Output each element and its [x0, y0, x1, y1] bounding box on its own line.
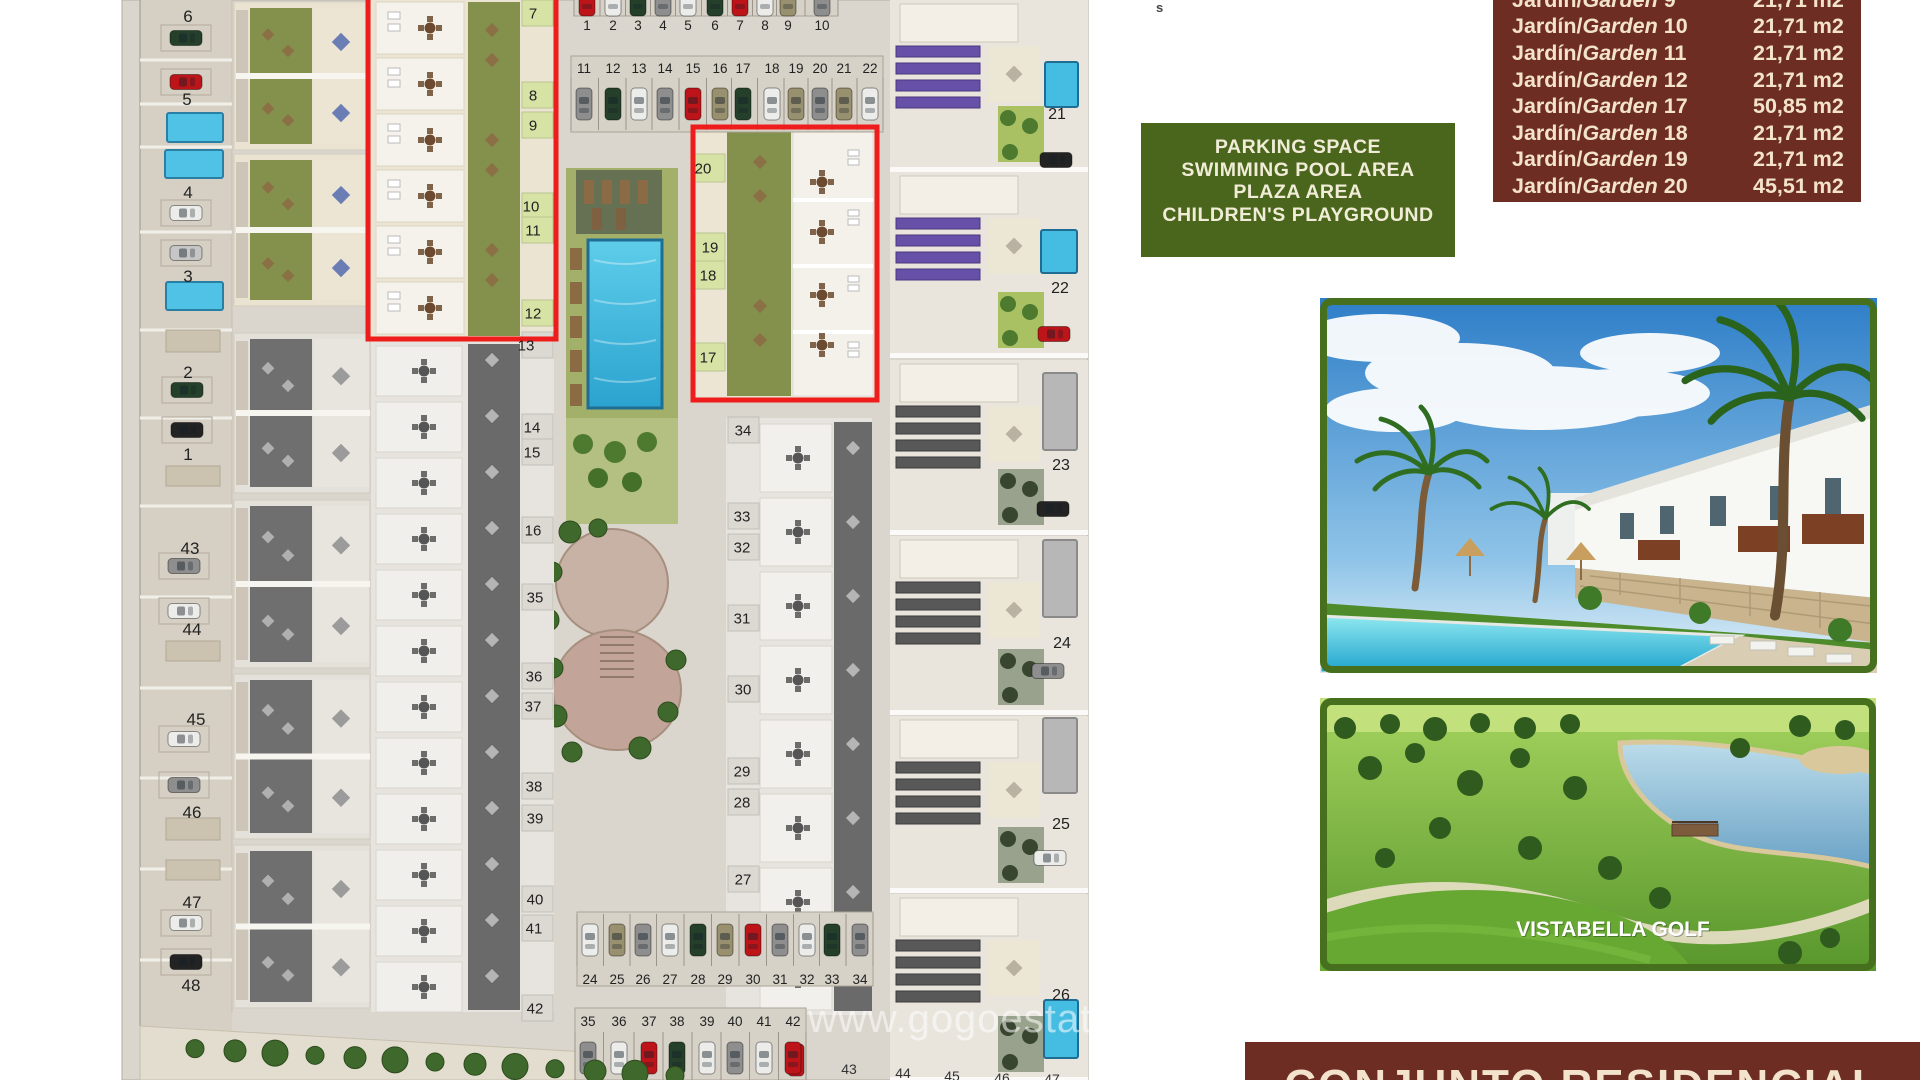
plan-number: 15	[524, 444, 541, 461]
plan-number: 21	[836, 61, 851, 76]
plan-number: 37	[641, 1014, 656, 1029]
plan-number: 3	[634, 18, 642, 33]
plan-number: 41	[756, 1014, 771, 1029]
plan-number: 30	[745, 972, 760, 987]
plan-number: 16	[712, 61, 727, 76]
plan-number: 9	[529, 117, 537, 134]
plan-number: 43	[181, 539, 200, 558]
bottom-banner: CONJUNTO RESIDENCIAL	[1245, 1042, 1920, 1080]
plan-number: 38	[526, 778, 543, 795]
plan-number: 32	[799, 972, 814, 987]
plan-number: 29	[734, 763, 751, 780]
plan-number: 31	[772, 972, 787, 987]
plan-number: 4	[659, 18, 667, 33]
plan-number: 47	[1044, 1071, 1060, 1080]
plan-number: 38	[669, 1014, 684, 1029]
plan-number: 24	[582, 972, 598, 987]
garden-size: 45,51 m2	[1753, 174, 1844, 199]
plan-number: 46	[183, 803, 202, 822]
plan-number: 19	[788, 61, 803, 76]
plan-number: 20	[812, 61, 827, 76]
amenities-legend: PARKING SPACESWIMMING POOL AREAPLAZA ARE…	[1141, 123, 1455, 257]
garden-size: 21,71 m2	[1753, 0, 1844, 13]
plan-number: 22	[1051, 280, 1069, 297]
plan-number: 10	[814, 18, 829, 33]
plan-number: 10	[523, 198, 540, 215]
plan-number: 18	[700, 267, 717, 284]
plan-number: 19	[702, 239, 719, 256]
garden-label: Jardín/Garden 18	[1512, 121, 1753, 146]
plan-number: 43	[841, 1061, 857, 1077]
legend-line: PLAZA AREA	[1141, 181, 1455, 204]
plan-number: 34	[735, 422, 752, 439]
plan-number: 35	[580, 1014, 595, 1029]
garden-label: Jardín/Garden 19	[1512, 147, 1753, 172]
plan-number: 16	[525, 522, 542, 539]
plan-number: 17	[700, 349, 717, 366]
plan-number: 5	[684, 18, 692, 33]
plan-number: 20	[695, 160, 712, 177]
plan-number: 44	[183, 620, 202, 639]
plan-number: 27	[662, 972, 677, 987]
garden-label: Jardín/Garden 9	[1512, 0, 1753, 13]
garden-size-table: Jardín/Garden 921,71 m2Jardín/Garden 102…	[1493, 0, 1861, 202]
golf-photo: VISTABELLA GOLF VISTABELLA GOLF	[1320, 698, 1876, 971]
plan-number: 9	[784, 18, 792, 33]
table-row: Jardín/Garden 1121,71 m2	[1493, 40, 1861, 67]
garden-label: Jardín/Garden 11	[1512, 41, 1753, 66]
plan-number: 42	[785, 1014, 800, 1029]
plan-number: 40	[727, 1014, 742, 1029]
garden-size: 21,71 m2	[1753, 147, 1844, 172]
plan-number: 25	[1052, 816, 1070, 833]
plan-number: 44	[895, 1065, 911, 1080]
plan-number: 14	[524, 419, 541, 436]
plan-number: 8	[761, 18, 769, 33]
plan-number: 31	[734, 610, 751, 627]
plan-number: 11	[525, 222, 541, 239]
legend-line: CHILDREN'S PLAYGROUND	[1141, 204, 1455, 227]
pool-photo	[1320, 298, 1877, 673]
garden-label: Jardín/Garden 20	[1512, 174, 1753, 199]
garden-label: Jardín/Garden 17	[1512, 94, 1753, 119]
plan-number: 24	[1053, 635, 1071, 652]
plan-number: 2	[609, 18, 617, 33]
plan-number: 21	[1048, 106, 1066, 123]
plan-number: 2	[183, 363, 192, 382]
golf-caption: VISTABELLA GOLF	[1516, 918, 1710, 941]
plan-number: 12	[605, 61, 620, 76]
plan-number: 13	[631, 61, 646, 76]
plan-number: 33	[824, 972, 839, 987]
plan-number: 45	[187, 710, 206, 729]
plan-number: 39	[699, 1014, 714, 1029]
plan-number: 46	[994, 1070, 1010, 1080]
plan-number: 1	[183, 445, 192, 464]
table-row: Jardín/Garden 2045,51 m2	[1493, 173, 1861, 200]
plan-number: 47	[183, 893, 202, 912]
plan-number: 35	[527, 589, 544, 606]
plan-number: 22	[862, 61, 877, 76]
plan-number: 48	[182, 976, 201, 995]
plan-number: 12	[525, 305, 542, 322]
legend-line: SWIMMING POOL AREA	[1141, 159, 1455, 182]
plan-number: 32	[734, 539, 751, 556]
legend-line: PARKING SPACE	[1141, 136, 1455, 159]
plan-number: 29	[717, 972, 732, 987]
garden-size: 50,85 m2	[1753, 94, 1844, 119]
plan-number: 27	[735, 871, 752, 888]
brochure-page: 6543214344454647487891011121314151635363…	[0, 0, 1920, 1080]
bridge	[1672, 822, 1718, 836]
plan-number: 37	[525, 698, 542, 715]
plan-number: 28	[690, 972, 705, 987]
plan-number: 6	[711, 18, 719, 33]
plan-number: 5	[182, 90, 191, 109]
plan-number: 36	[526, 668, 543, 685]
plan-number: 7	[736, 18, 744, 33]
plan-number: 36	[611, 1014, 626, 1029]
table-row: Jardín/Garden 1021,71 m2	[1493, 14, 1861, 41]
plan-number: 25	[609, 972, 624, 987]
plan-number: 28	[734, 794, 751, 811]
plan-number: 3	[183, 267, 192, 286]
garden-label: Jardín/Garden 10	[1512, 14, 1753, 39]
plan-number: 26	[635, 972, 650, 987]
swimming-pool-area	[566, 168, 678, 524]
plan-number: 1	[583, 18, 591, 33]
plan-number: 30	[735, 681, 752, 698]
table-row: Jardín/Garden 1221,71 m2	[1493, 67, 1861, 94]
table-row: Jardín/Garden 1821,71 m2	[1493, 120, 1861, 147]
garden-size: 21,71 m2	[1753, 68, 1844, 93]
table-row: Jardín/Garden 1921,71 m2	[1493, 147, 1861, 174]
plan-number: 42	[527, 1000, 544, 1017]
plan-number: 7	[529, 5, 537, 22]
garden-size: 21,71 m2	[1753, 14, 1844, 39]
garden-label: Jardín/Garden 12	[1512, 68, 1753, 93]
plan-number: 17	[735, 61, 750, 76]
cropped-text-fragment: s	[1156, 0, 1163, 15]
plan-number: 33	[734, 508, 751, 525]
table-row: Jardín/Garden 921,71 m2	[1493, 0, 1861, 14]
plan-number: 34	[852, 972, 868, 987]
banner-title: CONJUNTO RESIDENCIAL	[1245, 1061, 1920, 1080]
plan-number: 15	[685, 61, 700, 76]
garden-size: 21,71 m2	[1753, 121, 1844, 146]
plan-number: 41	[526, 920, 543, 937]
table-row: Jardín/Garden 1750,85 m2	[1493, 93, 1861, 120]
watermark: www.gogoestates.com	[807, 997, 1227, 1041]
garden-size: 21,71 m2	[1753, 41, 1844, 66]
plan-number: 40	[527, 891, 544, 908]
plan-number: 11	[577, 61, 591, 76]
plan-number: 8	[529, 87, 537, 104]
plan-number: 13	[518, 337, 535, 354]
plan-number: 18	[764, 61, 779, 76]
plan-number: 23	[1052, 457, 1070, 474]
plan-number: 4	[183, 183, 192, 202]
plan-number: 39	[527, 810, 544, 827]
plan-number: 6	[183, 7, 192, 26]
plan-number: 45	[944, 1068, 960, 1080]
plan-number: 14	[657, 61, 673, 76]
